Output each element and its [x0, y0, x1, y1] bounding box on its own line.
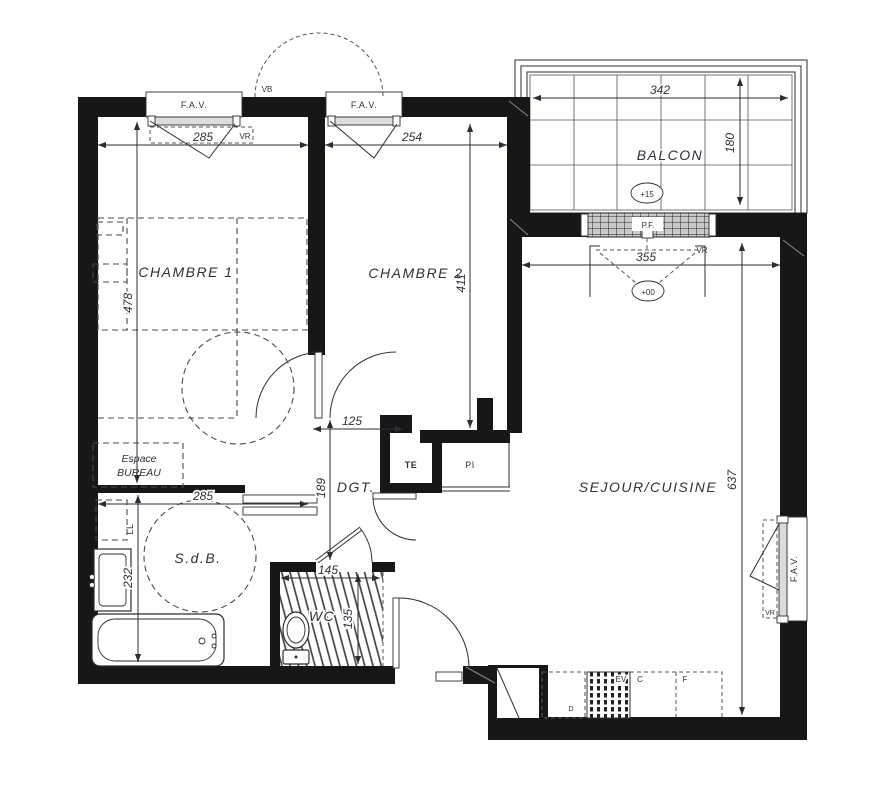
- wall-segment: [432, 433, 442, 483]
- svg-text:285: 285: [192, 130, 213, 144]
- door-leaf-wc: [316, 527, 362, 563]
- svg-text:478: 478: [121, 293, 135, 313]
- sliding-door-panel: [243, 507, 317, 515]
- washer-label: LL: [125, 523, 135, 534]
- door-leaf-entry: [393, 598, 399, 668]
- room-label-balcon: BALCON: [637, 147, 704, 163]
- wall-segment: [78, 666, 395, 684]
- svg-text:232: 232: [121, 568, 135, 589]
- shutter-arc-vb: VB: [255, 33, 383, 97]
- wall-segment: [78, 97, 148, 117]
- dim-bay-width: 355: [522, 250, 780, 265]
- dim-chambre2-width: 254: [325, 130, 507, 145]
- room-label-sejour: SEJOUR/CUISINE: [579, 479, 717, 495]
- wall-segment: [507, 213, 587, 237]
- desk-area-outline: [93, 443, 183, 487]
- kitchen-counter: EV C F D: [542, 672, 722, 718]
- turning-circle: [182, 332, 294, 444]
- wall-segment: [710, 213, 807, 237]
- wall-segment: [507, 117, 530, 213]
- bathtub-drain: [199, 638, 205, 644]
- door-leaf-sejour: [373, 493, 416, 499]
- sink-label: EV: [616, 675, 627, 684]
- dim-chambre1-height: 478: [121, 122, 137, 483]
- window-swing: [330, 121, 397, 158]
- svg-text:180: 180: [723, 133, 737, 153]
- cooker-label: C: [637, 675, 643, 684]
- wall-segment: [400, 97, 530, 117]
- room-label-bureau-2: BUREAU: [117, 467, 161, 479]
- room-label-chambre1: CHAMBRE 1: [138, 264, 233, 280]
- wall-segment: [780, 237, 807, 518]
- floor-plan-canvas: F.A.V. VR F.A.V. VB P.F. +00 VR +15: [0, 0, 894, 800]
- window-chambre2: F.A.V.: [326, 92, 402, 158]
- svg-text:285: 285: [192, 489, 213, 503]
- entry-threshold: [436, 672, 462, 681]
- vb-swing-arc: [255, 33, 383, 97]
- roller-shutter-box: [763, 520, 777, 618]
- room-label-sdb: S.d.B.: [174, 550, 221, 566]
- dishwasher-label: D: [568, 706, 573, 713]
- dim-dgt-height: 189: [314, 420, 330, 560]
- window-label: F.A.V.: [181, 100, 207, 110]
- floorplan-image: F.A.V. VR F.A.V. VB P.F. +00 VR +15: [0, 0, 894, 800]
- svg-text:145: 145: [318, 563, 338, 577]
- closet-front-lines: [442, 443, 510, 491]
- wall-segment: [270, 562, 280, 666]
- door-leaf-chambre1: [315, 352, 322, 418]
- shutter-label: VR: [696, 246, 707, 255]
- fridge-label: F: [683, 675, 688, 684]
- dim-chambre1-width: 285: [98, 130, 308, 145]
- level-value: +00: [641, 288, 655, 297]
- nightstand-outline: [97, 222, 123, 235]
- wall-segment: [92, 485, 245, 493]
- sliding-door-panel: [243, 495, 317, 503]
- window-chambre1: F.A.V. VR: [146, 92, 253, 158]
- window-glazing: [150, 117, 238, 125]
- room-label-chambre2: CHAMBRE 2: [368, 265, 463, 281]
- svg-text:189: 189: [314, 478, 328, 498]
- door-arc-chambre1: [256, 352, 322, 418]
- wall-segment: [380, 483, 442, 493]
- balcony-level: +15: [631, 183, 663, 203]
- dim-balcon-width: 342: [533, 83, 788, 98]
- window-sejour: F.A.V. VR: [750, 516, 807, 623]
- wall-segment: [240, 97, 328, 117]
- level-value: +15: [640, 190, 654, 199]
- washer-outline: [96, 500, 127, 540]
- door-arc-chambre2: [330, 352, 396, 418]
- window-label: F.A.V.: [351, 100, 377, 110]
- wall-segment: [507, 237, 522, 433]
- door-arc-entry: [399, 598, 469, 668]
- room-label-wc: WC: [309, 608, 335, 624]
- svg-text:125: 125: [342, 414, 362, 428]
- pf-label: P.F.: [642, 221, 655, 230]
- svg-text:135: 135: [341, 609, 355, 629]
- rug-outline: [98, 330, 237, 418]
- duct-shaft: [497, 668, 539, 718]
- door-arc-sejour: [373, 497, 416, 540]
- svg-text:342: 342: [650, 83, 670, 97]
- room-label-dgt: DGT.: [337, 479, 375, 495]
- kitchen-units-dashed: [630, 672, 722, 717]
- svg-text:637: 637: [725, 469, 739, 490]
- window-swing: [750, 524, 779, 590]
- kitchen-unit: [542, 672, 585, 718]
- wall-segment: [372, 562, 395, 572]
- svg-text:355: 355: [636, 250, 656, 264]
- closet-label-te: TE: [405, 460, 418, 470]
- wall-segment: [308, 117, 325, 355]
- window-glazing: [330, 117, 398, 125]
- wall-segment: [477, 398, 493, 432]
- dim-sejour-height: 637: [725, 243, 742, 715]
- door-arc-wc: [360, 528, 372, 562]
- wall-segment: [380, 415, 412, 433]
- closet-label-pi: PI: [465, 460, 475, 470]
- vb-label: VB: [262, 85, 273, 94]
- dim-balcon-height: 180: [723, 78, 740, 205]
- window-label: F.A.V.: [789, 556, 799, 582]
- room-label-bureau-1: Espace: [121, 453, 156, 465]
- svg-text:254: 254: [401, 130, 422, 144]
- window-glazing: [779, 521, 787, 618]
- shutter-label: VR: [239, 132, 250, 141]
- shutter-label: VR: [765, 610, 775, 617]
